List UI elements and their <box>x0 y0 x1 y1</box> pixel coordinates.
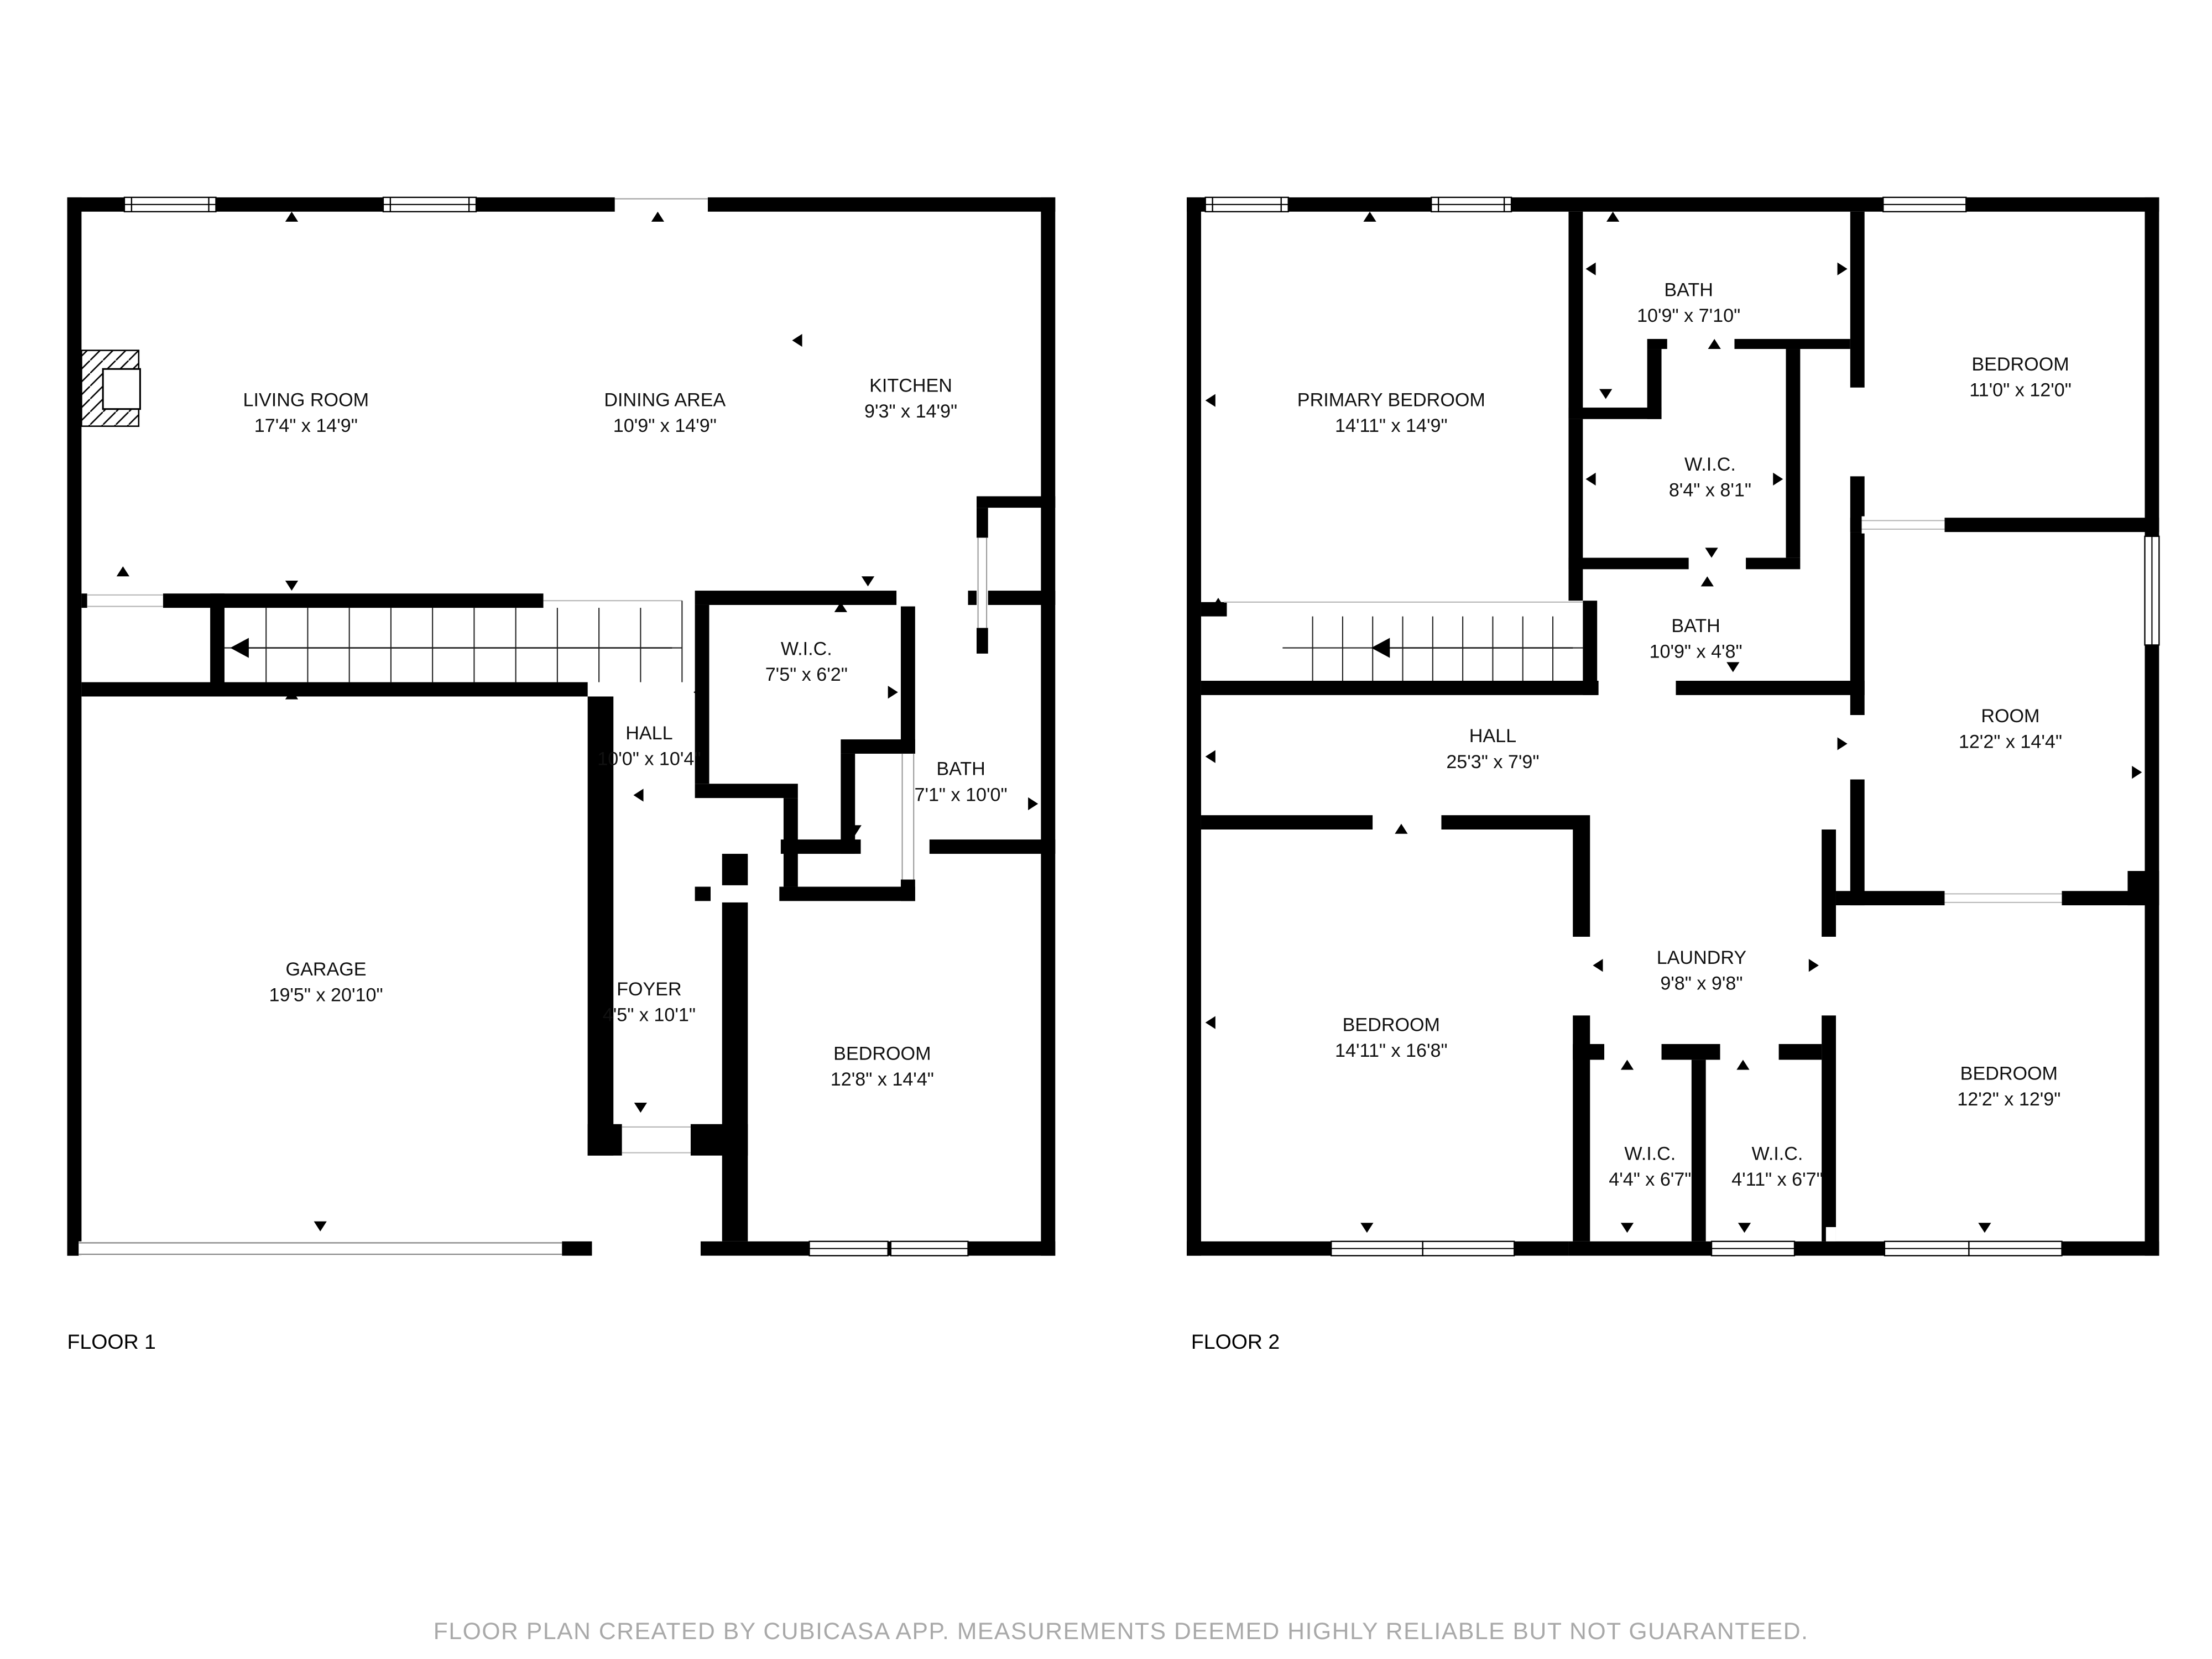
window-icon <box>1969 1241 2062 1256</box>
room-dims: 17'4" x 14'9" <box>254 415 358 436</box>
room-dims: 19'5" x 20'10" <box>269 984 383 1005</box>
window-icon <box>124 197 216 212</box>
room-label: W.I.C. <box>1752 1143 1803 1164</box>
room-label: ROOM <box>1981 706 2039 727</box>
floor2-label: FLOOR 2 <box>1191 1330 1280 1353</box>
room-label: BEDROOM <box>1971 354 2069 375</box>
staircase-floor2 <box>1282 617 1583 681</box>
room-dims: 10'0" x 10'4" <box>597 749 701 770</box>
garage-door-icon <box>79 1241 562 1256</box>
room-label: BATH <box>1671 615 1720 637</box>
room-dims: 14'11" x 14'9" <box>1335 415 1448 436</box>
window-icon <box>891 1241 968 1256</box>
floor-plan-page: LIVING ROOM 17'4" x 14'9" DINING AREA 10… <box>0 0 2212 1659</box>
room-dims: 8'4" x 8'1" <box>1669 479 1751 500</box>
floor1-plan <box>67 197 1056 1256</box>
room-label: LIVING ROOM <box>243 389 369 410</box>
floor1-label: FLOOR 1 <box>67 1330 156 1353</box>
room-label: BATH <box>1664 279 1713 300</box>
room-label: BATH <box>936 759 985 780</box>
room-dims: 10'9" x 7'10" <box>1637 305 1740 326</box>
room-dims: 14'11" x 16'8" <box>1335 1040 1448 1061</box>
window-icon <box>615 197 708 212</box>
window-icon <box>1883 197 1966 212</box>
room-label: W.I.C. <box>1684 454 1736 475</box>
room-label: BEDROOM <box>1960 1063 2058 1084</box>
window-icon <box>1712 1241 1794 1256</box>
room-label: W.I.C. <box>781 638 832 659</box>
window-icon <box>1885 1241 1969 1256</box>
room-label: FOYER <box>617 979 682 1000</box>
window-icon <box>2145 536 2159 645</box>
floor2-opening-lines <box>1224 520 2062 902</box>
room-dims: 11'0" x 12'0" <box>1969 379 2072 400</box>
room-dims: 7'5" x 6'2" <box>765 664 848 685</box>
fireplace-icon <box>81 351 140 426</box>
room-dims: 9'3" x 14'9" <box>864 401 957 422</box>
room-label: BEDROOM <box>833 1043 931 1064</box>
floor-plan-canvas: LIVING ROOM 17'4" x 14'9" DINING AREA 10… <box>0 0 2212 1659</box>
room-dims: 10'9" x 14'9" <box>613 415 717 436</box>
window-icon <box>809 1241 888 1256</box>
floor1-windows <box>124 197 988 1256</box>
room-dims: 12'2" x 12'9" <box>1957 1089 2060 1110</box>
room-label: KITCHEN <box>869 375 952 397</box>
room-dims: 12'2" x 14'4" <box>1959 732 2062 753</box>
window-icon <box>1431 197 1511 212</box>
room-dims: 7'1" x 10'0" <box>914 784 1007 805</box>
room-label: HALL <box>1469 726 1516 747</box>
room-dims: 25'3" x 7'9" <box>1446 752 1539 773</box>
room-label: GARAGE <box>286 959 367 980</box>
room-label: DINING AREA <box>604 389 726 410</box>
window-icon <box>901 754 915 880</box>
window-icon <box>1423 1241 1514 1256</box>
door-direction-markers <box>117 212 2142 1233</box>
window-icon <box>977 538 988 628</box>
room-dims: 4'11" x 6'7" <box>1731 1169 1823 1190</box>
room-label: W.I.C. <box>1624 1143 1676 1164</box>
room-dims: 4'5" x 10'1" <box>603 1005 696 1026</box>
window-icon <box>1331 1241 1422 1256</box>
room-dims: 10'9" x 4'8" <box>1649 641 1742 662</box>
room-label: LAUNDRY <box>1657 947 1747 968</box>
room-dims: 12'8" x 14'4" <box>831 1069 934 1090</box>
staircase-floor1 <box>225 601 682 682</box>
room-label: BEDROOM <box>1343 1015 1440 1036</box>
window-icon <box>383 197 476 212</box>
room-dims: 4'4" x 6'7" <box>1609 1169 1691 1190</box>
room-dims: 9'8" x 9'8" <box>1660 973 1743 994</box>
footer-disclaimer: FLOOR PLAN CREATED BY CUBICASA APP. MEAS… <box>434 1618 1809 1645</box>
window-icon <box>1206 197 1288 212</box>
room-label: HALL <box>625 723 672 744</box>
floor1-walls <box>67 197 1056 1256</box>
room-label: PRIMARY BEDROOM <box>1297 389 1485 410</box>
